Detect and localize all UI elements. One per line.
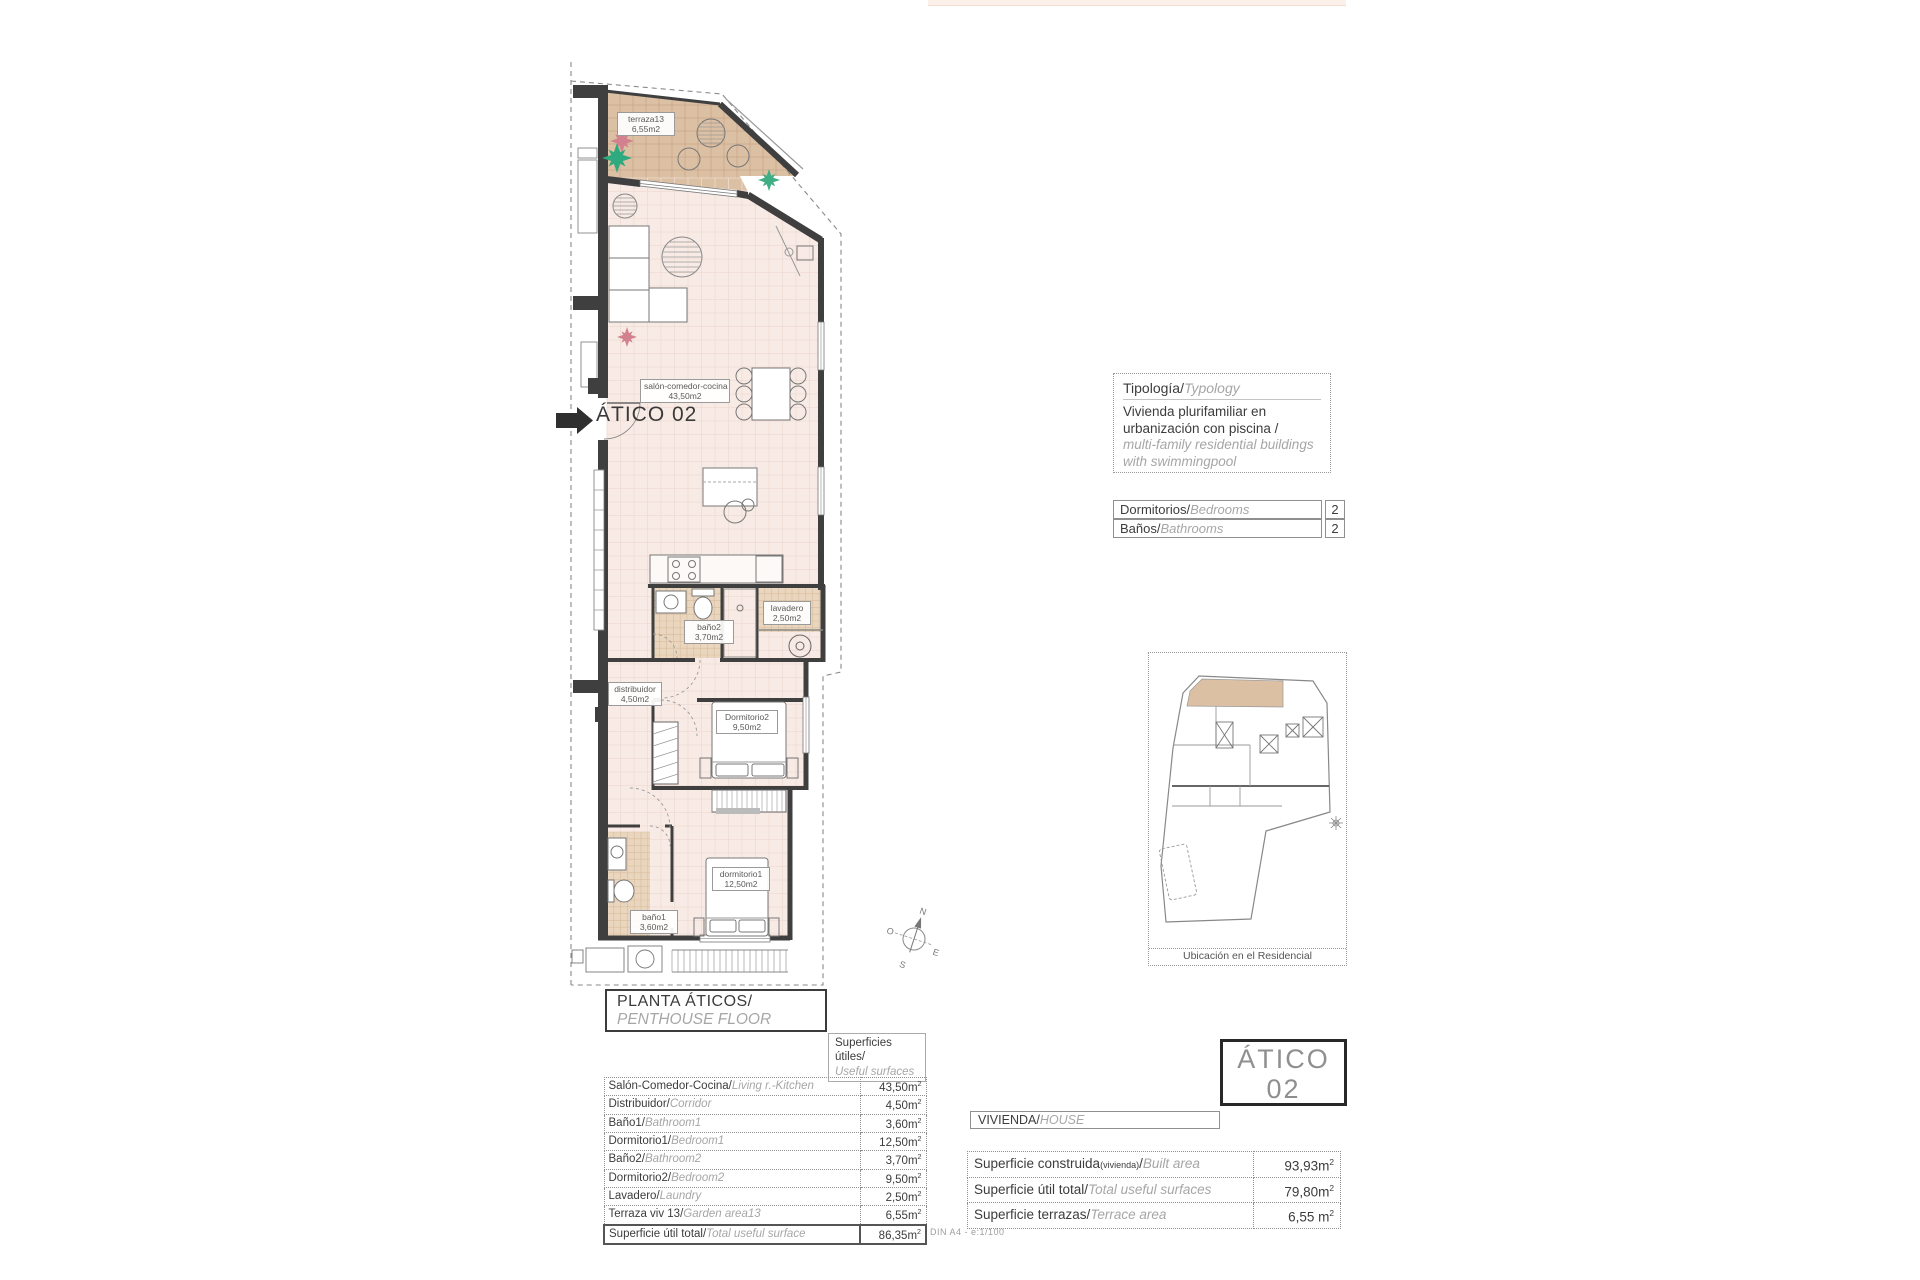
room-label-dormitorio1: dormitorio112,50m2 [712, 867, 770, 891]
table-row: Terraza viv 13/Garden area13 6,55m2 [604, 1206, 926, 1225]
svg-text:S: S [898, 959, 907, 970]
bedrooms-value: 2 [1325, 500, 1345, 519]
table-row: Lavadero/Laundry 2,50m2 [604, 1187, 926, 1205]
svg-text:N: N [918, 906, 927, 918]
room-label-bano2: baño23,70m2 [684, 620, 734, 644]
table-row: Salón-Comedor-Cocina/Living r.-Kitchen 4… [604, 1078, 926, 1096]
typology-title: Tipología/Typology [1123, 380, 1321, 400]
unit-arrow-icon [556, 407, 593, 434]
table-row: Dormitorio2/Bedroom2 9,50m2 [604, 1169, 926, 1187]
svg-text:O: O [885, 925, 895, 937]
room-label-lavadero: lavadero2,50m2 [763, 601, 811, 625]
table-row: Baño1/Bathroom1 3,60m2 [604, 1114, 926, 1132]
compass-icon: N E S O [877, 898, 951, 979]
bathrooms-count-row: Baños/Bathrooms 2 [1113, 519, 1345, 538]
table-row: Dormitorio1/Bedroom1 12,50m2 [604, 1132, 926, 1150]
vivienda-header-bar: VIVIENDA/HOUSE [970, 1111, 1220, 1129]
typology-body: Vivienda plurifamiliar en urbanización c… [1123, 404, 1321, 471]
bedrooms-count-row: Dormitorios/Bedrooms 2 [1113, 500, 1345, 519]
svg-text:E: E [932, 947, 941, 958]
room-label-salon: salón-comedor-cocina43,50m2 [640, 379, 730, 403]
room-label-dormitorio2: Dormitorio29,50m2 [716, 710, 778, 734]
unit-id-box: ÁTICO 02 [1220, 1039, 1347, 1106]
table-row: Distribuidor/Corridor 4,50m2 [604, 1096, 926, 1114]
bathrooms-label: Baños/Bathrooms [1113, 519, 1322, 538]
scale-note: DIN A4 - e:1/100 [930, 1227, 1005, 1237]
room-label-bano1: baño13,60m2 [630, 910, 678, 934]
bathrooms-value: 2 [1325, 519, 1345, 538]
room-label-distribuidor: distribuidor4,50m2 [608, 682, 662, 706]
table-row: Superficie terrazas/Terrace area 6,55 m2 [968, 1203, 1341, 1229]
bedrooms-label: Dormitorios/Bedrooms [1113, 500, 1322, 519]
floor-plan-drawing: N E S O [0, 0, 1920, 1280]
unit-pointer-label: ÁTICO 02 [596, 403, 697, 427]
table-row: Baño2/Bathroom2 3,70m2 [604, 1151, 926, 1169]
floor-title-es: PLANTA ÁTICOS/ [617, 993, 815, 1011]
location-box: Ubicación en el Residencial [1148, 652, 1347, 966]
room-label-terraza: terraza136,55m2 [617, 112, 675, 136]
table-row: Superficie útil total/Total useful surfa… [968, 1177, 1341, 1203]
floor-title-box: PLANTA ÁTICOS/ PENTHOUSE FLOOR [605, 989, 827, 1032]
table-row: Superficie construida(vivienda)/Built ar… [968, 1152, 1341, 1178]
total-row: Superficie útil total/Total useful surfa… [604, 1225, 926, 1244]
location-caption: Ubicación en el Residencial [1149, 948, 1346, 965]
typology-box: Tipología/Typology Vivienda plurifamilia… [1113, 373, 1331, 473]
useful-surfaces-table: Salón-Comedor-Cocina/Living r.-Kitchen 4… [603, 1077, 927, 1245]
floor-title-en: PENTHOUSE FLOOR [617, 1011, 815, 1029]
useful-surfaces-header: Superficies útiles/ Useful surfaces [828, 1033, 926, 1082]
house-surfaces-table: Superficie construida(vivienda)/Built ar… [967, 1151, 1341, 1229]
floorplan-page: N E S O [0, 0, 1920, 1280]
